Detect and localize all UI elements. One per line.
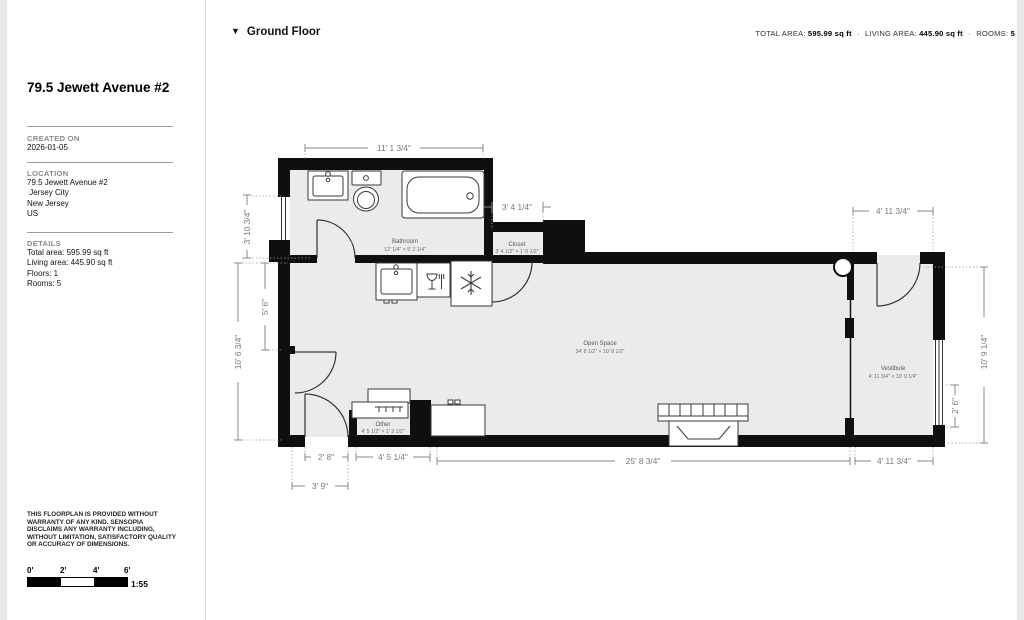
room-dims: 4' 11 3/4" × 10' 9 1/4"	[869, 374, 918, 380]
location-block: LOCATION 79.5 Jewett Avenue #2 Jersey Ci…	[27, 169, 108, 220]
dim-top-closet: 3' 4 1/4"	[502, 202, 532, 212]
stat-separator: ·	[968, 29, 971, 38]
room-dims: 12' 1/4" × 5' 2 1/4"	[384, 247, 426, 253]
page-edge-left	[0, 0, 7, 620]
floor-selector[interactable]: ▼Ground Floor	[231, 26, 320, 38]
floor-label: Ground Floor	[247, 26, 320, 38]
location-line: New Jersey	[27, 199, 108, 209]
kitchen-sink	[376, 263, 417, 303]
left-window	[278, 197, 290, 240]
room-name: Other	[375, 422, 390, 428]
kitchen-counter	[431, 400, 485, 436]
stat-value: 445.90 sq ft	[919, 29, 963, 38]
sidebar-rule	[27, 126, 173, 127]
created-value: 2026-01-05	[27, 143, 80, 153]
scale-tick: 0'	[27, 566, 33, 575]
room-name: Closet	[508, 242, 525, 248]
room-dims: 34' 8 1/2" × 10' 8 1/2"	[575, 349, 624, 355]
room-name: Bathroom	[392, 239, 418, 245]
room-name: Open Space	[583, 341, 617, 347]
stat-label: TOTAL AREA:	[755, 29, 805, 38]
sidebar-rule	[27, 232, 173, 233]
scale-tick: 2'	[60, 566, 66, 575]
room-name: Vestibule	[881, 366, 906, 372]
page-title: 79.5 Jewett Avenue #2	[27, 80, 187, 95]
location-line: 79.5 Jewett Avenue #2	[27, 178, 108, 188]
bathtub	[402, 171, 484, 218]
sofa	[658, 404, 748, 446]
dim-left-window: 3' 10 3/4"	[242, 210, 252, 245]
details-label: DETAILS	[27, 239, 112, 248]
dim-bottom-open: 25' 8 3/4"	[626, 456, 661, 466]
dim-bottom-other: 4' 5 1/4"	[378, 452, 408, 462]
dim-bottom-vestibule: 4' 11 3/4"	[877, 456, 911, 466]
details-line: Rooms: 5	[27, 279, 112, 289]
refrigerator	[451, 261, 492, 306]
column	[834, 258, 852, 276]
scale-ruler	[27, 577, 128, 587]
dim-right-window: 2' 6"	[950, 398, 960, 414]
dim-right-overall: 10' 9 1/4"	[979, 335, 989, 370]
stat-separator: ·	[857, 29, 860, 38]
dishwasher	[417, 263, 450, 297]
scale-tick-labels: 0' 2' 4' 6'	[27, 566, 187, 575]
sidebar-rule	[27, 162, 173, 163]
floorplan: 11' 1 3/4" 3' 4 1/4" 4' 11 3/4" 3' 10 3/…	[225, 130, 1024, 505]
dim-bottom-entry: 3' 9"	[312, 481, 328, 491]
dim-bottom-door: 2' 8"	[318, 452, 334, 462]
created-block: CREATED ON 2026-01-05	[27, 134, 80, 153]
location-line: Jersey City	[27, 188, 108, 198]
location-label: LOCATION	[27, 169, 108, 178]
dim-left-inner: 5' 6"	[260, 299, 270, 315]
scale-ratio: 1:55	[131, 579, 148, 589]
vanity-sink	[308, 171, 348, 200]
disclaimer-text: THIS FLOORPLAN IS PROVIDED WITHOUT WARRA…	[27, 511, 179, 549]
dim-top-vestibule: 4' 11 3/4"	[876, 206, 910, 216]
chevron-down-icon: ▼	[231, 26, 240, 36]
details-line: Floors: 1	[27, 269, 112, 279]
details-line: Living area: 445.90 sq ft	[27, 258, 112, 268]
right-window	[933, 340, 945, 425]
scale-tick: 6'	[124, 566, 130, 575]
details-block: DETAILS Total area: 595.99 sq ft Living …	[27, 239, 112, 290]
stat-label: ROOMS:	[976, 29, 1008, 38]
dim-top-bathroom: 11' 1 3/4"	[377, 143, 411, 153]
location-line: US	[27, 209, 108, 219]
scale-segment	[61, 578, 94, 586]
details-line: Total area: 595.99 sq ft	[27, 248, 112, 258]
stat-label: LIVING AREA:	[865, 29, 917, 38]
sidebar-divider	[205, 0, 206, 620]
room-dims: 4' 5 1/2" × 1' 3 1/2"	[361, 429, 404, 435]
stat-value: 5	[1011, 29, 1015, 38]
dim-left-overall: 10' 6 3/4"	[233, 335, 243, 370]
created-label: CREATED ON	[27, 134, 80, 143]
scale-tick: 4'	[93, 566, 99, 575]
scale-bar: 0' 2' 4' 6' 1:55	[27, 566, 187, 587]
stat-value: 595.99 sq ft	[808, 29, 852, 38]
area-stats: TOTAL AREA: 595.99 sq ft · LIVING AREA: …	[755, 29, 1015, 38]
room-dims: 3' 4 1/2" × 1' 6 1/2"	[495, 249, 538, 255]
